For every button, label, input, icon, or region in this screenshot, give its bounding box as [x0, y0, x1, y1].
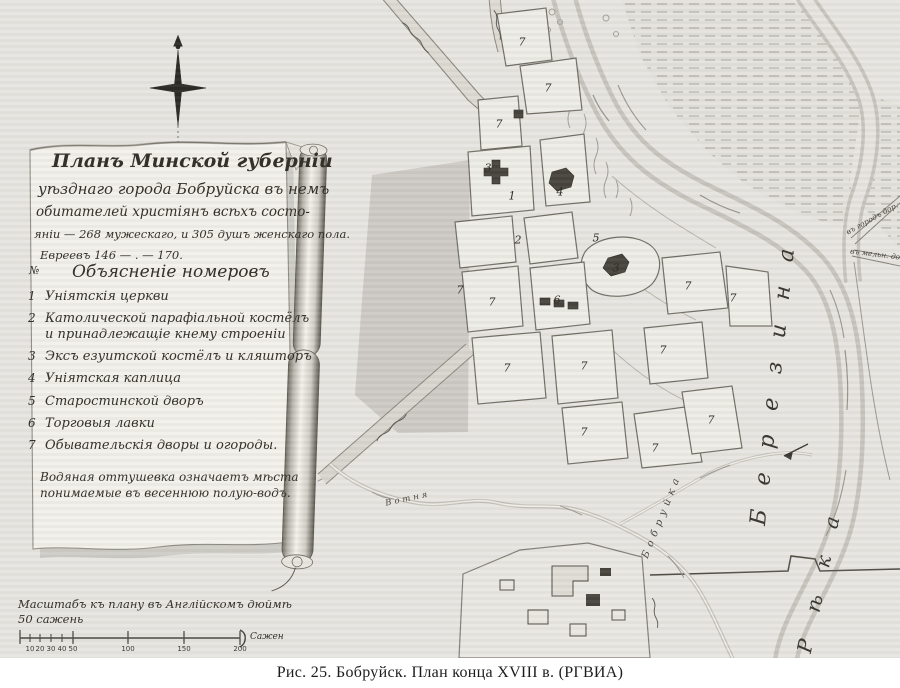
scale-unit-label: Сажен: [250, 632, 284, 642]
legend-header: Объясненіе номеровъ: [72, 262, 270, 282]
legend-item-number: 5: [28, 394, 45, 409]
legend-item-number: 7: [28, 438, 45, 453]
map-title-line5: Евреевъ 146 — . — 170.: [40, 248, 183, 262]
block-number-label: 5: [593, 232, 600, 245]
map-title-line1: Планъ Минской губерніи: [52, 150, 333, 172]
legend-item-text-line2: и принадлежащіе кнему строеніи: [45, 327, 286, 342]
scanned-map-page: Планъ Минской губерніи уѣзднаго города Б…: [0, 0, 900, 688]
legend-list: 1 Уніятскія церкви 2 Католической парафі…: [28, 289, 310, 461]
block-number-label: 7: [496, 118, 503, 131]
block-number-label: 2: [515, 234, 522, 247]
legend-note: Водяная оттушевка означаетъ мѣста понима…: [40, 470, 298, 502]
trade-row: [568, 302, 578, 309]
block-number-label: 7: [519, 36, 526, 49]
block-number-label: 7: [489, 296, 496, 309]
legend-note-line1: Водяная оттушевка означаетъ мѣста: [40, 470, 298, 486]
block-number-label: 7: [652, 442, 659, 455]
legend-item-number: 4: [28, 371, 45, 386]
map-scan-area: Планъ Минской губерніи уѣзднаго города Б…: [0, 0, 900, 658]
block-number-label: 7: [660, 344, 667, 357]
block-number-label: 1: [509, 190, 516, 203]
map-title-line3: обитателей христіянъ всѣхъ состо-: [36, 204, 310, 220]
scale-tick-label: 40: [58, 645, 67, 653]
legend-item: 6 Торговыя лавки: [28, 416, 310, 431]
legend-item: 2 Католической парафіальной костёлъ и пр…: [28, 311, 310, 342]
map-title-line4: яніи — 268 мужескаго, и 305 душъ женскаг…: [34, 227, 350, 241]
scale-tick-label: 50: [69, 645, 78, 653]
legend-item-text: Уніятскія церкви: [45, 289, 169, 304]
legend-item: 7 Обывательскія дворы и огороды.: [28, 438, 310, 453]
scale-tick-label: 30: [47, 645, 56, 653]
legend-item-number: 2: [28, 311, 45, 342]
block-number-label: 7: [730, 292, 737, 305]
scale-title-line1: Масштабъ къ плану въ Англійскомъ дюймѣ: [18, 597, 292, 611]
legend-item-text: Эксъ езуитской костёлъ и кляшторъ: [45, 349, 312, 364]
legend-item: 1 Уніятскія церкви: [28, 289, 310, 304]
block-number-label: 7: [581, 360, 588, 373]
block-number-label: 7: [504, 362, 511, 375]
trade-row: [540, 298, 550, 305]
block-number-label: 3: [485, 162, 492, 175]
scale-tick-label: 150: [177, 645, 190, 653]
figure-caption: Рис. 25. Бобруйск. План конца XVIII в. (…: [0, 658, 900, 688]
legend-item-text: Уніятская каплица: [45, 371, 181, 386]
legend-item: 5 Старостинской дворъ: [28, 394, 310, 409]
legend-item-text: Католической парафіальной костёлъ и прин…: [45, 311, 309, 342]
scale-tick-label: 20: [36, 645, 45, 653]
map-title-line2: уѣзднаго города Бобруйска въ немъ: [38, 180, 329, 198]
block-number-label: 7: [457, 284, 464, 297]
block-number-label: 3: [613, 262, 620, 275]
block-number-label: 6: [554, 294, 561, 307]
legend-item-text: Обывательскія дворы и огороды.: [45, 438, 277, 453]
block-number-label: 4: [557, 186, 564, 199]
legend-item-number: 3: [28, 349, 45, 364]
scale-tick-label: 100: [121, 645, 134, 653]
block-number-label: 7: [685, 280, 692, 293]
block-number-label: 7: [545, 82, 552, 95]
scale-tick-label: 200: [233, 645, 246, 653]
legend-number-column-header: №: [29, 264, 39, 277]
legend-item: 3 Эксъ езуитской костёлъ и кляшторъ: [28, 349, 310, 364]
legend-item: 4 Уніятская каплица: [28, 371, 310, 386]
legend-item-number: 1: [28, 289, 45, 304]
legend-item-text: Торговыя лавки: [45, 416, 155, 431]
legend-item-number: 6: [28, 416, 45, 431]
scale-title-line2: 50 сажень: [18, 612, 83, 626]
scale-tick-label: 10: [26, 645, 35, 653]
block-number-label: 7: [581, 426, 588, 439]
block-number-label: 7: [708, 414, 715, 427]
legend-note-line2: понимаемые въ весеннюю полую-водъ.: [40, 486, 298, 502]
legend-item-text: Старостинской дворъ: [45, 394, 204, 409]
